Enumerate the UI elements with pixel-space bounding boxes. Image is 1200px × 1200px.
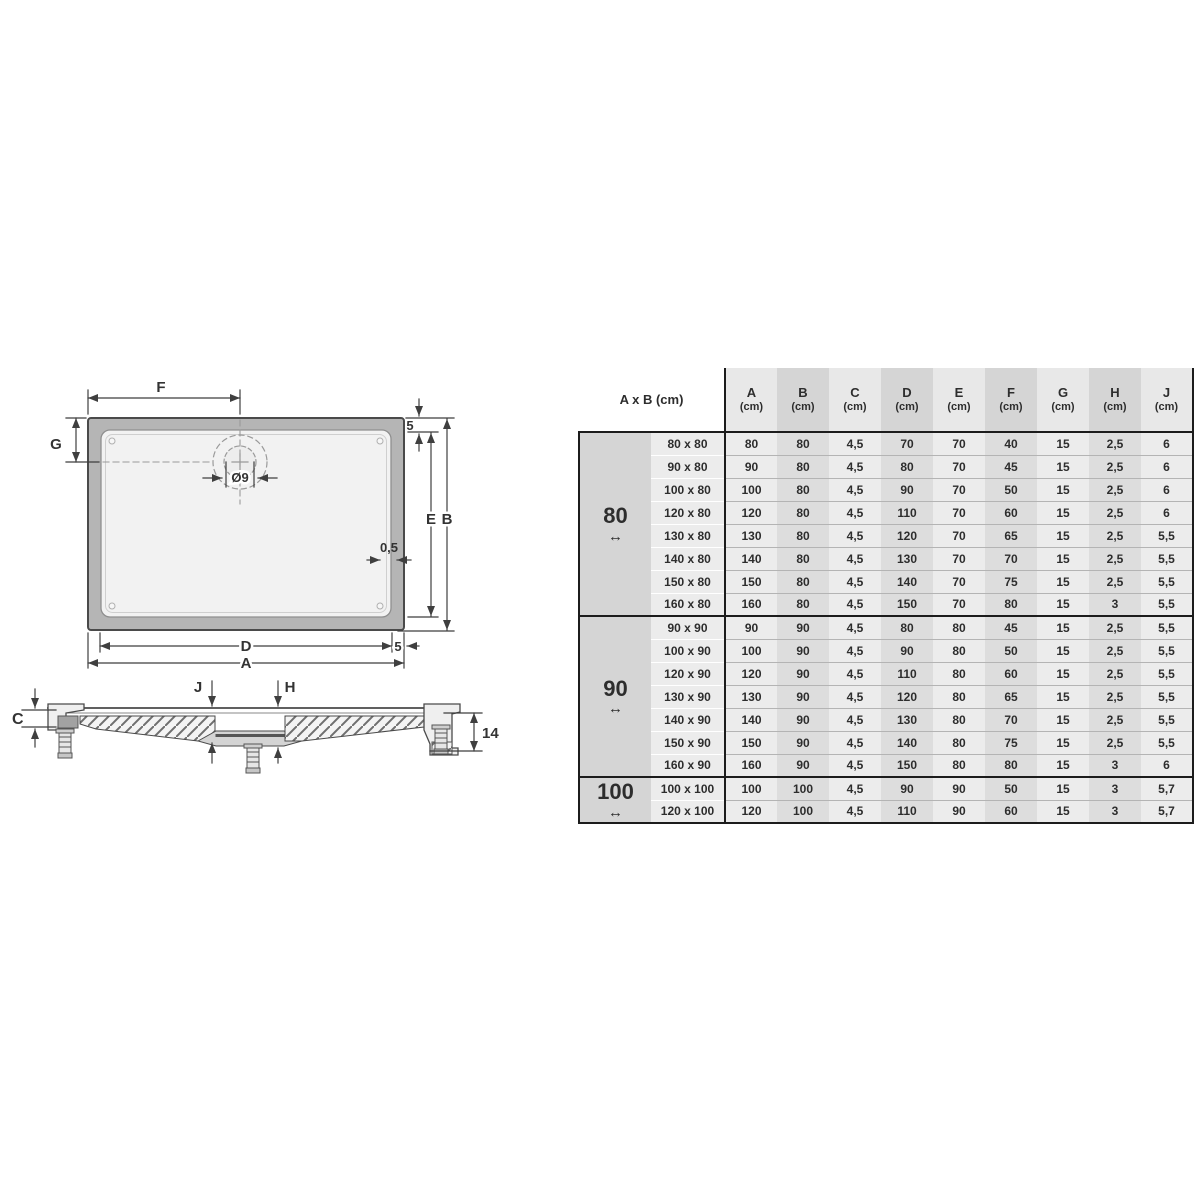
- size-cell: 120 x 90: [651, 662, 725, 685]
- value-cell: 90: [777, 616, 829, 639]
- spec-table: A x B (cm)A(cm)B(cm)C(cm)D(cm)E(cm)F(cm)…: [578, 368, 1194, 824]
- value-cell: 90: [777, 754, 829, 777]
- value-cell: 90: [777, 731, 829, 754]
- value-cell: 6: [1141, 432, 1193, 455]
- value-cell: 3: [1089, 754, 1141, 777]
- value-cell: 15: [1037, 524, 1089, 547]
- value-cell: 5,5: [1141, 593, 1193, 616]
- value-cell: 5,7: [1141, 777, 1193, 800]
- value-cell: 120: [881, 524, 933, 547]
- col-header-cell: F(cm): [985, 368, 1037, 432]
- dim-label-j: J: [194, 679, 202, 696]
- value-cell: 90: [777, 662, 829, 685]
- value-cell: 4,5: [829, 616, 881, 639]
- group-label: 90: [580, 677, 651, 700]
- value-cell: 5,5: [1141, 570, 1193, 593]
- value-cell: 4,5: [829, 524, 881, 547]
- tray-body-hatch-right: [285, 716, 424, 741]
- value-cell: 2,5: [1089, 731, 1141, 754]
- size-cell: 150 x 90: [651, 731, 725, 754]
- value-cell: 80: [933, 754, 985, 777]
- value-cell: 150: [881, 754, 933, 777]
- col-header-unit: (cm): [1037, 401, 1089, 414]
- value-cell: 15: [1037, 501, 1089, 524]
- value-cell: 6: [1141, 754, 1193, 777]
- value-cell: 80: [933, 708, 985, 731]
- value-cell: 90: [777, 685, 829, 708]
- value-cell: 45: [985, 616, 1037, 639]
- value-cell: 70: [985, 547, 1037, 570]
- dim-label-g: G: [50, 436, 62, 453]
- value-cell: 100: [725, 639, 777, 662]
- value-cell: 65: [985, 524, 1037, 547]
- value-cell: 2,5: [1089, 708, 1141, 731]
- value-cell: 130: [881, 708, 933, 731]
- value-cell: 80: [985, 593, 1037, 616]
- col-header-letter: G: [1037, 385, 1089, 401]
- value-cell: 90: [881, 777, 933, 800]
- value-cell: 70: [933, 432, 985, 455]
- value-cell: 80: [881, 616, 933, 639]
- value-cell: 140: [725, 708, 777, 731]
- col-header-letter: F: [985, 385, 1037, 401]
- value-cell: 140: [881, 570, 933, 593]
- value-cell: 15: [1037, 478, 1089, 501]
- value-cell: 90: [933, 777, 985, 800]
- value-cell: 5,5: [1141, 685, 1193, 708]
- value-cell: 4,5: [829, 455, 881, 478]
- value-cell: 60: [985, 662, 1037, 685]
- value-cell: 80: [777, 455, 829, 478]
- value-cell: 15: [1037, 455, 1089, 478]
- value-cell: 80: [777, 547, 829, 570]
- value-cell: 70: [933, 478, 985, 501]
- value-cell: 15: [1037, 777, 1089, 800]
- col-header-letter: A: [726, 385, 777, 401]
- value-cell: 4,5: [829, 685, 881, 708]
- size-cell: 100 x 90: [651, 639, 725, 662]
- dim-label-wall: 0,5: [380, 540, 398, 555]
- value-cell: 80: [777, 478, 829, 501]
- value-cell: 90: [777, 639, 829, 662]
- value-cell: 4,5: [829, 593, 881, 616]
- corner-header: A x B (cm): [579, 368, 725, 432]
- value-cell: 150: [725, 570, 777, 593]
- value-cell: 80: [777, 501, 829, 524]
- value-cell: 6: [1141, 478, 1193, 501]
- dim-label-bottom-gap: 5: [394, 639, 401, 654]
- value-cell: 160: [725, 593, 777, 616]
- col-header-unit: (cm): [985, 401, 1037, 414]
- value-cell: 80: [985, 754, 1037, 777]
- width-arrow-icon: ↔: [580, 805, 651, 820]
- value-cell: 75: [985, 731, 1037, 754]
- value-cell: 80: [933, 616, 985, 639]
- col-header-unit: (cm): [881, 401, 933, 414]
- value-cell: 130: [881, 547, 933, 570]
- value-cell: 15: [1037, 800, 1089, 823]
- value-cell: 4,5: [829, 662, 881, 685]
- size-cell: 150 x 80: [651, 570, 725, 593]
- value-cell: 60: [985, 800, 1037, 823]
- value-cell: 5,5: [1141, 639, 1193, 662]
- value-cell: 4,5: [829, 754, 881, 777]
- value-cell: 2,5: [1089, 639, 1141, 662]
- value-cell: 5,7: [1141, 800, 1193, 823]
- col-header-letter: J: [1141, 385, 1192, 401]
- value-cell: 15: [1037, 754, 1089, 777]
- value-cell: 4,5: [829, 800, 881, 823]
- tray-top-view: F G Ø9 5 E B 0,5 D 5 A: [50, 379, 454, 672]
- value-cell: 50: [985, 478, 1037, 501]
- dim-label-height: 14: [482, 725, 499, 742]
- col-header-letter: H: [1089, 385, 1141, 401]
- size-cell: 120 x 80: [651, 501, 725, 524]
- value-cell: 50: [985, 777, 1037, 800]
- value-cell: 120: [725, 800, 777, 823]
- col-header-cell: D(cm): [881, 368, 933, 432]
- col-header-letter: D: [881, 385, 933, 401]
- value-cell: 90: [881, 639, 933, 662]
- value-cell: 80: [777, 432, 829, 455]
- dim-label-f: F: [156, 379, 165, 396]
- value-cell: 80: [933, 662, 985, 685]
- col-header-cell: A(cm): [725, 368, 777, 432]
- value-cell: 15: [1037, 432, 1089, 455]
- width-arrow-icon: ↔: [580, 529, 651, 544]
- size-cell: 160 x 80: [651, 593, 725, 616]
- col-header-unit: (cm): [933, 401, 985, 414]
- value-cell: 2,5: [1089, 662, 1141, 685]
- col-header-cell: G(cm): [1037, 368, 1089, 432]
- value-cell: 15: [1037, 570, 1089, 593]
- value-cell: 80: [933, 639, 985, 662]
- size-cell: 100 x 80: [651, 478, 725, 501]
- value-cell: 2,5: [1089, 524, 1141, 547]
- value-cell: 100: [725, 478, 777, 501]
- size-cell: 140 x 90: [651, 708, 725, 731]
- value-cell: 120: [881, 685, 933, 708]
- size-cell: 160 x 90: [651, 754, 725, 777]
- col-header-letter: C: [829, 385, 881, 401]
- dim-label-h: H: [285, 679, 296, 696]
- value-cell: 4,5: [829, 708, 881, 731]
- foot-center: [244, 744, 262, 773]
- dim-label-b: B: [442, 511, 453, 528]
- value-cell: 100: [725, 777, 777, 800]
- dim-label-a: A: [241, 655, 252, 672]
- value-cell: 110: [881, 501, 933, 524]
- value-cell: 65: [985, 685, 1037, 708]
- size-cell: 130 x 80: [651, 524, 725, 547]
- value-cell: 80: [777, 524, 829, 547]
- col-header-letter: B: [777, 385, 829, 401]
- value-cell: 3: [1089, 777, 1141, 800]
- value-cell: 2,5: [1089, 455, 1141, 478]
- value-cell: 60: [985, 501, 1037, 524]
- value-cell: 15: [1037, 593, 1089, 616]
- foot-right: [432, 725, 450, 754]
- value-cell: 5,5: [1141, 662, 1193, 685]
- value-cell: 90: [725, 616, 777, 639]
- value-cell: 4,5: [829, 547, 881, 570]
- col-header-unit: (cm): [829, 401, 881, 414]
- width-arrow-icon: ↔: [580, 701, 651, 716]
- value-cell: 2,5: [1089, 547, 1141, 570]
- value-cell: 80: [933, 731, 985, 754]
- value-cell: 90: [777, 708, 829, 731]
- value-cell: 15: [1037, 731, 1089, 754]
- value-cell: 4,5: [829, 570, 881, 593]
- value-cell: 70: [933, 524, 985, 547]
- size-cell: 100 x 100: [651, 777, 725, 800]
- group-label: 100: [580, 780, 651, 803]
- value-cell: 5,5: [1141, 731, 1193, 754]
- value-cell: 70: [985, 708, 1037, 731]
- value-cell: 150: [881, 593, 933, 616]
- size-cell: 90 x 80: [651, 455, 725, 478]
- col-header-unit: (cm): [1089, 401, 1141, 414]
- size-cell: 120 x 100: [651, 800, 725, 823]
- value-cell: 80: [881, 455, 933, 478]
- col-header-unit: (cm): [1141, 401, 1192, 414]
- size-cell: 130 x 90: [651, 685, 725, 708]
- col-header-letter: E: [933, 385, 985, 401]
- value-cell: 2,5: [1089, 432, 1141, 455]
- value-cell: 3: [1089, 593, 1141, 616]
- value-cell: 70: [933, 455, 985, 478]
- value-cell: 110: [881, 800, 933, 823]
- value-cell: 15: [1037, 639, 1089, 662]
- value-cell: 90: [933, 800, 985, 823]
- value-cell: 2,5: [1089, 685, 1141, 708]
- value-cell: 4,5: [829, 501, 881, 524]
- dim-label-e: E: [426, 511, 436, 528]
- value-cell: 5,5: [1141, 708, 1193, 731]
- value-cell: 5,5: [1141, 616, 1193, 639]
- value-cell: 70: [933, 501, 985, 524]
- value-cell: 2,5: [1089, 570, 1141, 593]
- value-cell: 15: [1037, 547, 1089, 570]
- value-cell: 120: [725, 662, 777, 685]
- dim-label-c: C: [12, 711, 24, 728]
- value-cell: 80: [777, 570, 829, 593]
- group-cell: 100↔: [579, 777, 651, 823]
- col-header-unit: (cm): [777, 401, 829, 414]
- value-cell: 3: [1089, 800, 1141, 823]
- value-cell: 4,5: [829, 639, 881, 662]
- spec-table-body: A x B (cm)A(cm)B(cm)C(cm)D(cm)E(cm)F(cm)…: [579, 368, 1193, 823]
- value-cell: 15: [1037, 685, 1089, 708]
- value-cell: 90: [725, 455, 777, 478]
- value-cell: 80: [933, 685, 985, 708]
- value-cell: 6: [1141, 501, 1193, 524]
- value-cell: 70: [933, 547, 985, 570]
- value-cell: 40: [985, 432, 1037, 455]
- value-cell: 15: [1037, 616, 1089, 639]
- col-header-cell: C(cm): [829, 368, 881, 432]
- value-cell: 140: [725, 547, 777, 570]
- value-cell: 4,5: [829, 777, 881, 800]
- col-header-cell: E(cm): [933, 368, 985, 432]
- tray-side-view: C J H 14: [12, 679, 499, 773]
- value-cell: 70: [933, 570, 985, 593]
- col-header-cell: J(cm): [1141, 368, 1193, 432]
- product-dimension-sheet: F G Ø9 5 E B 0,5 D 5 A: [0, 0, 1200, 1200]
- tray-body-hatch-left: [80, 716, 215, 741]
- value-cell: 70: [881, 432, 933, 455]
- col-header-cell: H(cm): [1089, 368, 1141, 432]
- size-cell: 80 x 80: [651, 432, 725, 455]
- value-cell: 2,5: [1089, 501, 1141, 524]
- value-cell: 120: [725, 501, 777, 524]
- value-cell: 130: [725, 685, 777, 708]
- value-cell: 100: [777, 777, 829, 800]
- value-cell: 6: [1141, 455, 1193, 478]
- value-cell: 45: [985, 455, 1037, 478]
- size-cell: 90 x 90: [651, 616, 725, 639]
- value-cell: 100: [777, 800, 829, 823]
- group-cell: 80↔: [579, 432, 651, 616]
- value-cell: 2,5: [1089, 478, 1141, 501]
- dim-label-top-gap: 5: [406, 418, 413, 433]
- value-cell: 90: [881, 478, 933, 501]
- value-cell: 50: [985, 639, 1037, 662]
- value-cell: 5,5: [1141, 547, 1193, 570]
- dim-label-d: D: [241, 638, 252, 655]
- value-cell: 15: [1037, 662, 1089, 685]
- dim-label-drain: Ø9: [231, 470, 248, 485]
- value-cell: 80: [725, 432, 777, 455]
- value-cell: 2,5: [1089, 616, 1141, 639]
- value-cell: 140: [881, 731, 933, 754]
- value-cell: 110: [881, 662, 933, 685]
- col-header-cell: B(cm): [777, 368, 829, 432]
- value-cell: 15: [1037, 708, 1089, 731]
- value-cell: 150: [725, 731, 777, 754]
- value-cell: 4,5: [829, 731, 881, 754]
- group-label: 80: [580, 504, 651, 527]
- value-cell: 4,5: [829, 478, 881, 501]
- value-cell: 160: [725, 754, 777, 777]
- value-cell: 80: [777, 593, 829, 616]
- foot-left: [56, 729, 74, 758]
- size-cell: 140 x 80: [651, 547, 725, 570]
- value-cell: 75: [985, 570, 1037, 593]
- col-header-unit: (cm): [726, 401, 777, 414]
- value-cell: 130: [725, 524, 777, 547]
- value-cell: 5,5: [1141, 524, 1193, 547]
- value-cell: 4,5: [829, 432, 881, 455]
- value-cell: 70: [933, 593, 985, 616]
- group-cell: 90↔: [579, 616, 651, 777]
